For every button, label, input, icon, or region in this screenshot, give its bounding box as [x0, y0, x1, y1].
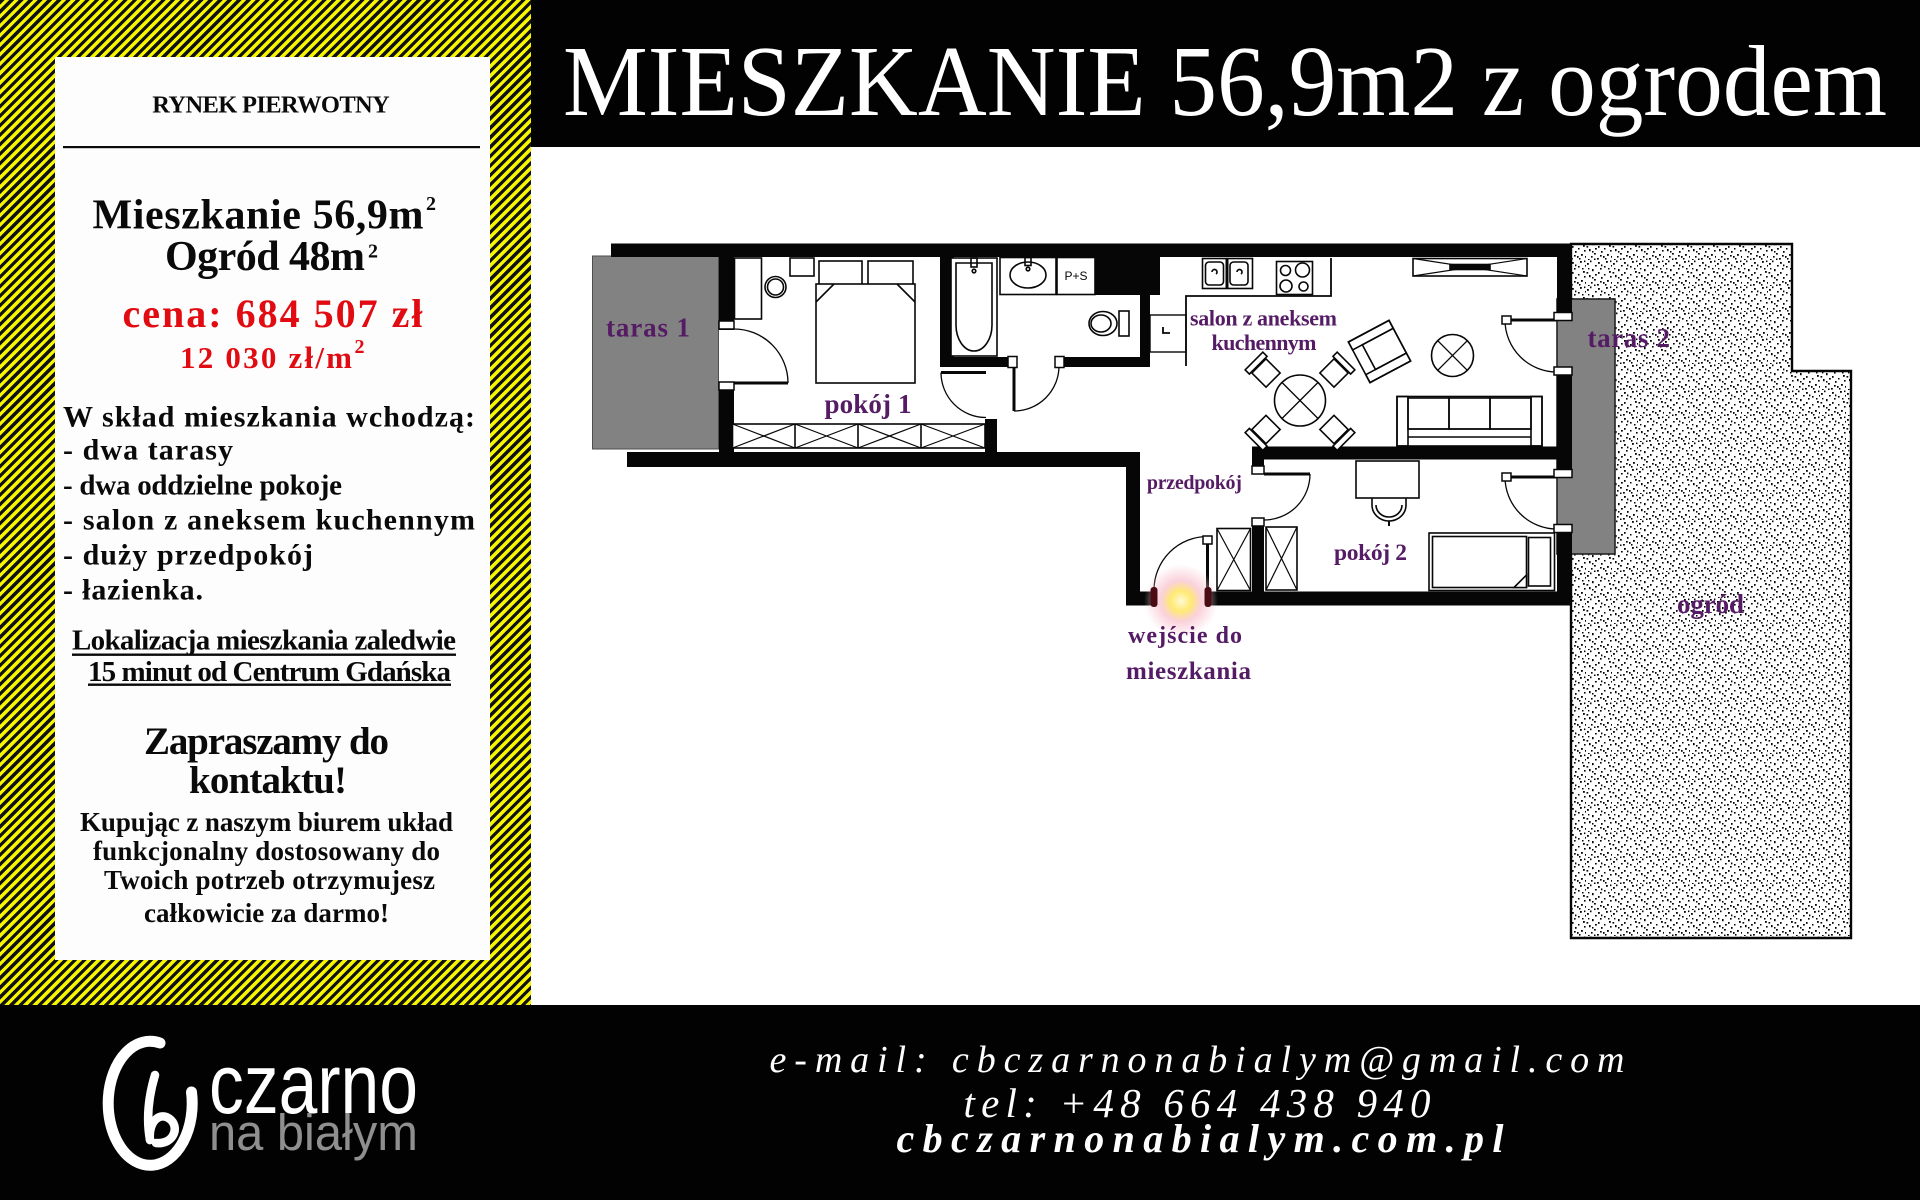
- svg-text:- salon z aneksem kuchennym: - salon z aneksem kuchennym: [63, 504, 475, 537]
- svg-text:2: 2: [368, 241, 378, 263]
- svg-text:12 030 zł/m: 12 030 zł/m: [180, 340, 352, 375]
- svg-text:RYNEK PIERWOTNY: RYNEK PIERWOTNY: [152, 92, 390, 119]
- svg-text:na białym: na białym: [209, 1104, 418, 1161]
- svg-text:cbczarnonabialym.com.pl: cbczarnonabialym.com.pl: [897, 1116, 1505, 1161]
- svg-text:taras 2: taras 2: [1587, 323, 1670, 353]
- svg-text:Twoich potrzeb otrzymujesz: Twoich potrzeb otrzymujesz: [104, 865, 435, 895]
- svg-text:- dwa tarasy: - dwa tarasy: [63, 434, 233, 467]
- svg-text:- łazienka.: - łazienka.: [63, 574, 203, 607]
- svg-text:pokój 2: pokój 2: [1334, 540, 1407, 566]
- svg-text:pokój 1: pokój 1: [825, 389, 912, 419]
- svg-text:Ogród 48m: Ogród 48m: [165, 234, 365, 280]
- svg-text:salon z aneksem: salon z aneksem: [1190, 306, 1337, 331]
- svg-text:wejście do: wejście do: [1128, 623, 1242, 649]
- svg-text:taras 1: taras 1: [606, 313, 690, 343]
- svg-text:W skład mieszkania wchodzą:: W skład mieszkania wchodzą:: [63, 401, 475, 434]
- svg-text:2: 2: [355, 336, 365, 358]
- svg-text:MIESZKANIE 56,9m2 z ogrodem: MIESZKANIE 56,9m2 z ogrodem: [563, 25, 1887, 137]
- svg-text:cena: 684 507 zł: cena: 684 507 zł: [123, 291, 423, 336]
- svg-text:e-mail: cbczarnonabialym@gmail: e-mail: cbczarnonabialym@gmail.com: [770, 1039, 1625, 1081]
- svg-text:całkowicie za darmo!: całkowicie za darmo!: [144, 898, 389, 928]
- svg-text:2: 2: [426, 193, 436, 215]
- svg-text:funkcjonalny dostosowany do: funkcjonalny dostosowany do: [93, 836, 440, 866]
- svg-text:15 minut od Centrum Gdańska: 15 minut od Centrum Gdańska: [88, 656, 452, 688]
- svg-text:Mieszkanie 56,9m: Mieszkanie 56,9m: [93, 193, 424, 239]
- svg-text:mieszkania: mieszkania: [1126, 658, 1252, 685]
- svg-text:przedpokój: przedpokój: [1147, 472, 1242, 494]
- svg-text:Zapraszamy do: Zapraszamy do: [144, 720, 389, 763]
- svg-text:P+S: P+S: [1064, 269, 1087, 283]
- svg-text:ogród: ogród: [1677, 589, 1744, 619]
- svg-text:- dwa oddzielne pokoje: - dwa oddzielne pokoje: [63, 470, 342, 502]
- svg-text:kuchennym: kuchennym: [1212, 330, 1317, 355]
- svg-text:kontaktu!: kontaktu!: [189, 759, 347, 802]
- svg-text:Lokalizacja mieszkania zaledwi: Lokalizacja mieszkania zaledwie: [72, 625, 456, 657]
- svg-text:Kupując z naszym biurem układ: Kupując z naszym biurem układ: [80, 807, 453, 837]
- svg-text:- duży przedpokój: - duży przedpokój: [63, 539, 313, 572]
